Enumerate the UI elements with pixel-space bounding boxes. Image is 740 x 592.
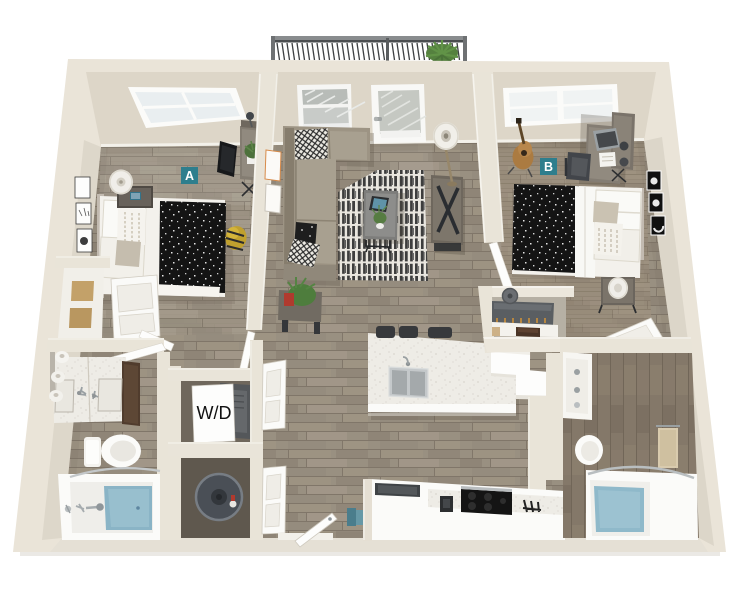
svg-text:A: A bbox=[185, 169, 194, 183]
svg-text:W/D: W/D bbox=[197, 403, 232, 423]
svg-text:B: B bbox=[544, 160, 553, 174]
